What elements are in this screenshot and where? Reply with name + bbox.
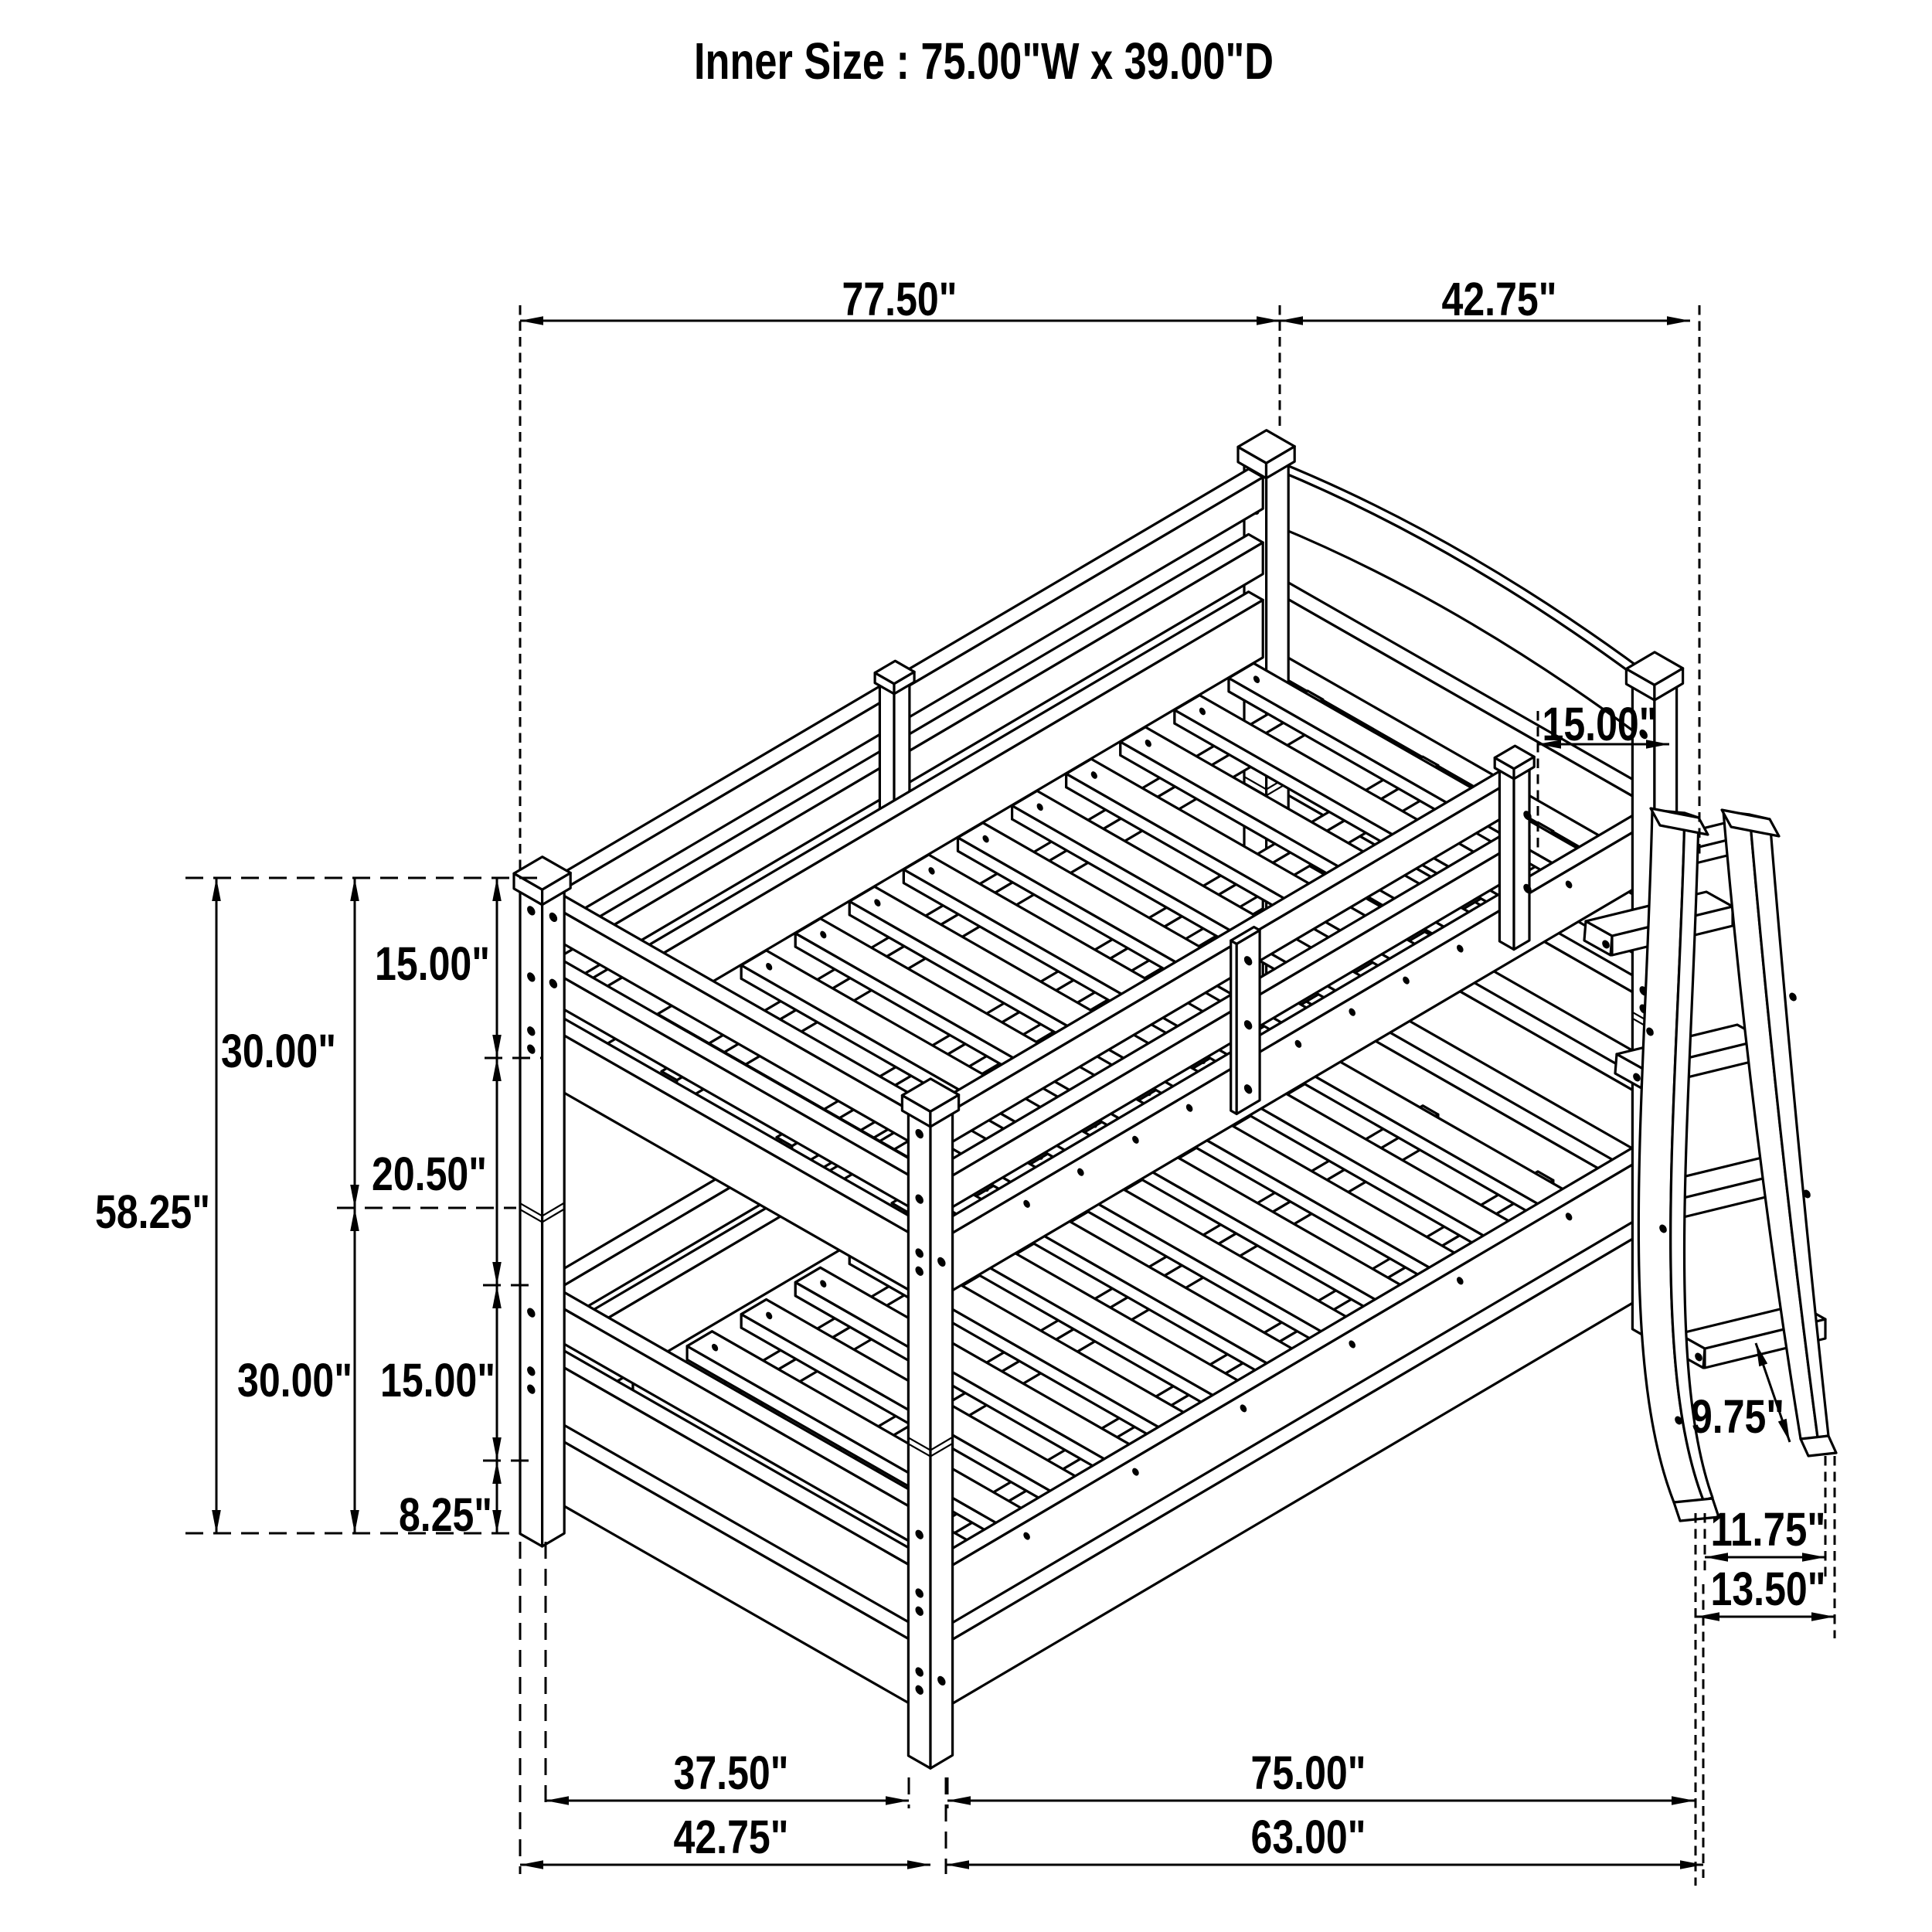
svg-text:42.75": 42.75": [1442, 273, 1557, 325]
svg-text:15.00": 15.00": [1543, 698, 1658, 750]
svg-text:42.75": 42.75": [674, 1811, 789, 1863]
svg-text:75.00": 75.00": [1251, 1747, 1366, 1799]
svg-text:58.25": 58.25": [95, 1185, 210, 1238]
svg-text:15.00": 15.00": [375, 937, 490, 990]
svg-text:Inner Size : 75.00"W x 39.00"D: Inner Size : 75.00"W x 39.00"D: [694, 32, 1274, 90]
svg-text:37.50": 37.50": [674, 1747, 789, 1799]
svg-text:77.50": 77.50": [842, 273, 957, 325]
svg-text:11.75": 11.75": [1711, 1503, 1826, 1556]
svg-text:8.25": 8.25": [399, 1488, 492, 1541]
svg-text:30.00": 30.00": [221, 1025, 336, 1077]
svg-text:9.75": 9.75": [1691, 1390, 1784, 1443]
svg-text:20.50": 20.50": [372, 1148, 487, 1200]
svg-text:13.50": 13.50": [1711, 1563, 1826, 1615]
svg-text:15.00": 15.00": [380, 1354, 495, 1406]
svg-text:63.00": 63.00": [1251, 1811, 1366, 1863]
svg-text:30.00": 30.00": [237, 1354, 352, 1406]
